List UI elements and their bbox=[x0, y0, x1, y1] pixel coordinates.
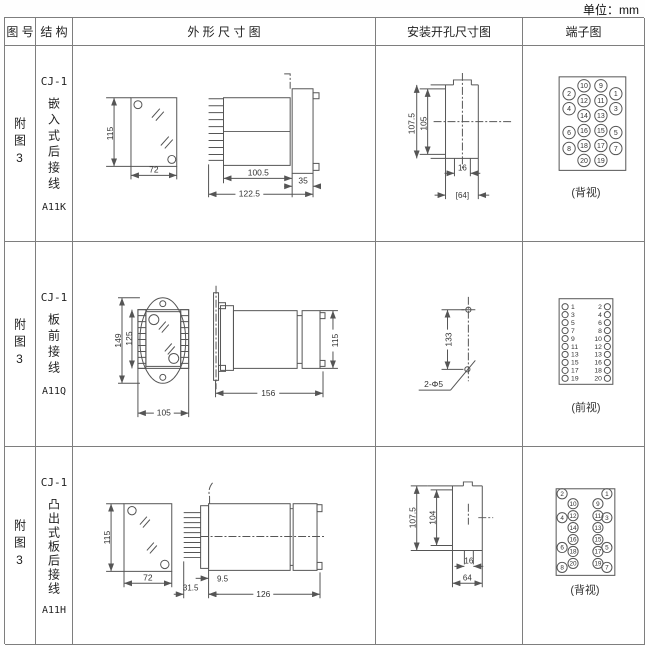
svg-text:19: 19 bbox=[597, 158, 605, 165]
svg-text:2: 2 bbox=[567, 91, 571, 98]
hole-layout: 133 2-Φ5 bbox=[419, 297, 476, 390]
svg-text:14: 14 bbox=[570, 525, 578, 532]
svg-text:13: 13 bbox=[594, 352, 602, 359]
terminal-circles: 1 3 5 7 9 11 13 15 17 19 2 4 6 8 10 12 1 bbox=[562, 304, 610, 383]
header-terminal: 端子图 bbox=[523, 18, 645, 46]
svg-text:16: 16 bbox=[570, 537, 578, 544]
install-cell-r2: 133 2-Φ5 bbox=[376, 242, 523, 447]
svg-text:20: 20 bbox=[594, 376, 602, 383]
terminal-caption: (前视) bbox=[571, 400, 600, 414]
dim-install-h2: 105 bbox=[419, 116, 429, 130]
dim-install-w2: 64 bbox=[463, 573, 472, 582]
svg-text:2: 2 bbox=[560, 491, 564, 498]
install-cell-r1: 107.5 105 16 [64] bbox=[376, 46, 523, 242]
dim-pin-depth: 31.5 bbox=[183, 583, 199, 592]
front-view: 115 72 bbox=[105, 98, 177, 180]
svg-text:5: 5 bbox=[571, 320, 575, 327]
outline-drawing-r2: 149 125 105 bbox=[73, 242, 375, 446]
install-dimensions: 107.5 105 16 [64] bbox=[407, 85, 489, 200]
terminal-cell-r3: 10 12 14 16 18 20 9 11 13 15 17 19 2 4 6… bbox=[523, 447, 645, 645]
svg-text:7: 7 bbox=[614, 146, 618, 153]
svg-text:17: 17 bbox=[594, 549, 602, 556]
header-fig-no: 图 号 bbox=[5, 18, 36, 46]
dim-side-height: 115 bbox=[330, 333, 340, 347]
svg-text:5: 5 bbox=[614, 130, 618, 137]
side-view: 9.5 31.5 126 bbox=[174, 483, 325, 599]
svg-text:17: 17 bbox=[597, 143, 605, 150]
svg-text:12: 12 bbox=[580, 98, 588, 105]
header-install: 安装开孔尺寸图 bbox=[376, 18, 523, 46]
fig-no-label: 附图3 bbox=[12, 117, 29, 170]
dim-install-h1: 107.5 bbox=[408, 507, 418, 528]
svg-text:15: 15 bbox=[597, 128, 605, 135]
svg-text:1: 1 bbox=[605, 491, 609, 498]
svg-text:9: 9 bbox=[596, 501, 600, 508]
dim-install-h1: 107.5 bbox=[407, 113, 417, 134]
dim-depth: 156 bbox=[261, 388, 275, 398]
svg-text:12: 12 bbox=[570, 513, 578, 520]
svg-text:19: 19 bbox=[571, 376, 579, 383]
model-label: A11H bbox=[42, 605, 66, 616]
dim-front-height: 115 bbox=[105, 127, 115, 141]
mount-label: 凸出式板后接线 bbox=[46, 498, 63, 596]
svg-text:20: 20 bbox=[570, 561, 578, 568]
svg-text:18: 18 bbox=[580, 143, 588, 150]
svg-text:10: 10 bbox=[580, 83, 588, 90]
svg-text:20: 20 bbox=[580, 158, 588, 165]
catalog-page: 单位：mm 图 号 结 构 外 形 尺 寸 图 安装开孔尺寸图 端子图 附图3 … bbox=[0, 0, 645, 646]
svg-text:8: 8 bbox=[598, 328, 602, 335]
dim-panel: 35 bbox=[298, 175, 308, 185]
structure-r3: CJ-1 凸出式板后接线 A11H bbox=[36, 447, 73, 645]
terminal-cell-r2: 1 3 5 7 9 11 13 15 17 19 2 4 6 8 10 12 1 bbox=[523, 242, 645, 447]
mount-label: 嵌入式后接线 bbox=[46, 97, 63, 193]
front-view: 149 125 105 bbox=[113, 298, 189, 418]
header-outline: 外 形 尺 寸 图 bbox=[73, 18, 376, 46]
install-cell-r3: 107.5 104 16 64 bbox=[376, 447, 523, 645]
svg-text:4: 4 bbox=[560, 515, 564, 522]
structure-r1: CJ-1 嵌入式后接线 A11K bbox=[36, 46, 73, 242]
series-label: CJ-1 bbox=[41, 75, 68, 88]
svg-text:10: 10 bbox=[594, 336, 602, 343]
dim-install-w1: 16 bbox=[464, 556, 473, 565]
svg-text:6: 6 bbox=[567, 130, 571, 137]
mount-label: 板前接线 bbox=[46, 313, 63, 377]
svg-text:13: 13 bbox=[597, 113, 605, 120]
dim-depth: 126 bbox=[256, 589, 270, 599]
install-dimensions: 107.5 104 16 64 bbox=[408, 486, 484, 583]
svg-text:18: 18 bbox=[570, 549, 578, 556]
svg-text:7: 7 bbox=[605, 565, 609, 572]
svg-text:18: 18 bbox=[594, 368, 602, 375]
dim-hole-height: 133 bbox=[443, 332, 453, 346]
svg-text:2: 2 bbox=[598, 304, 602, 311]
install-drawing-r1: 107.5 105 16 [64] bbox=[376, 46, 522, 241]
svg-text:19: 19 bbox=[594, 561, 602, 568]
svg-text:11: 11 bbox=[597, 98, 604, 105]
terminal-circles: 10 12 14 16 18 20 9 11 13 15 17 19 2 4 6… bbox=[563, 80, 622, 167]
svg-text:9: 9 bbox=[599, 83, 603, 90]
outline-cell-r1: 115 72 100.5 35 bbox=[73, 46, 376, 242]
hole-spec-label: 2-Φ5 bbox=[424, 379, 443, 389]
dim-install-w1: 16 bbox=[458, 163, 467, 172]
terminal-caption: (背视) bbox=[570, 582, 599, 596]
dim-total-depth: 122.5 bbox=[239, 189, 260, 199]
series-label: CJ-1 bbox=[41, 291, 68, 304]
svg-text:4: 4 bbox=[598, 312, 602, 319]
svg-text:8: 8 bbox=[560, 565, 564, 572]
fig-no-label: 附图3 bbox=[12, 318, 29, 371]
install-drawing-r2: 133 2-Φ5 bbox=[376, 242, 522, 446]
terminal-caption: (背视) bbox=[571, 185, 600, 199]
fig-no-label: 附图3 bbox=[12, 519, 29, 572]
side-view: 100.5 35 122.5 bbox=[209, 74, 321, 199]
side-view: 156 115 bbox=[214, 286, 340, 398]
header-structure: 结 构 bbox=[36, 18, 73, 46]
terminal-diagram-r2: 1 3 5 7 9 11 13 15 17 19 2 4 6 8 10 12 1 bbox=[523, 242, 644, 446]
terminal-diagram-r3: 10 12 14 16 18 20 9 11 13 15 17 19 2 4 6… bbox=[523, 447, 644, 644]
dim-front-height: 115 bbox=[102, 531, 112, 545]
svg-text:4: 4 bbox=[567, 106, 571, 113]
svg-text:15: 15 bbox=[594, 537, 602, 544]
outline-cell-r3: 115 72 9.5 31.5 bbox=[73, 447, 376, 645]
dim-install-h2: 104 bbox=[428, 510, 438, 524]
dim-inner-height: 125 bbox=[124, 331, 134, 345]
svg-text:9: 9 bbox=[571, 336, 575, 343]
front-view: 115 72 bbox=[102, 504, 172, 588]
svg-text:15: 15 bbox=[571, 360, 579, 367]
cutout-outline bbox=[411, 482, 493, 587]
unit-label: 单位：mm bbox=[583, 1, 639, 18]
terminal-cell-r1: 10 12 14 16 18 20 9 11 13 15 17 19 2 4 6… bbox=[523, 46, 645, 242]
svg-text:7: 7 bbox=[571, 328, 575, 335]
model-label: A11Q bbox=[42, 386, 66, 397]
dim-offset: 9.5 bbox=[217, 574, 229, 583]
dim-width: 105 bbox=[157, 408, 171, 418]
structure-r2: CJ-1 板前接线 A11Q bbox=[36, 242, 73, 447]
svg-text:13: 13 bbox=[594, 525, 602, 532]
dim-height: 149 bbox=[113, 333, 123, 347]
svg-text:17: 17 bbox=[571, 368, 579, 375]
svg-text:1: 1 bbox=[571, 304, 575, 311]
dim-install-w2: [64] bbox=[456, 191, 469, 200]
dimension-table: 图 号 结 构 外 形 尺 寸 图 安装开孔尺寸图 端子图 附图3 CJ-1 嵌… bbox=[4, 17, 644, 644]
fig-no-r1: 附图3 bbox=[5, 46, 36, 242]
svg-text:1: 1 bbox=[614, 91, 618, 98]
svg-text:12: 12 bbox=[594, 344, 602, 351]
svg-text:8: 8 bbox=[567, 146, 571, 153]
dim-depth: 100.5 bbox=[248, 167, 269, 177]
svg-text:13: 13 bbox=[571, 352, 579, 359]
series-label: CJ-1 bbox=[41, 476, 68, 489]
svg-text:11: 11 bbox=[595, 513, 602, 520]
outline-cell-r2: 149 125 105 bbox=[73, 242, 376, 447]
svg-text:3: 3 bbox=[571, 312, 575, 319]
install-drawing-r3: 107.5 104 16 64 bbox=[376, 447, 522, 644]
fig-no-r3: 附图3 bbox=[5, 447, 36, 645]
svg-text:6: 6 bbox=[560, 545, 564, 552]
cutout-outline bbox=[431, 73, 511, 199]
svg-text:11: 11 bbox=[571, 344, 578, 351]
svg-text:6: 6 bbox=[598, 320, 602, 327]
svg-text:3: 3 bbox=[614, 106, 618, 113]
outline-drawing-r3: 115 72 9.5 31.5 bbox=[73, 447, 375, 644]
svg-text:16: 16 bbox=[580, 128, 588, 135]
outline-drawing-r1: 115 72 100.5 35 bbox=[73, 46, 375, 241]
terminal-circles: 10 12 14 16 18 20 9 11 13 15 17 19 2 4 6… bbox=[557, 489, 612, 573]
dim-front-width: 72 bbox=[143, 572, 153, 582]
svg-text:10: 10 bbox=[570, 501, 578, 508]
svg-text:5: 5 bbox=[605, 545, 609, 552]
dim-front-width: 72 bbox=[149, 164, 159, 174]
svg-text:14: 14 bbox=[580, 113, 588, 120]
svg-text:3: 3 bbox=[605, 515, 609, 522]
svg-text:16: 16 bbox=[594, 360, 602, 367]
fig-no-r2: 附图3 bbox=[5, 242, 36, 447]
model-label: A11K bbox=[42, 202, 66, 213]
terminal-diagram-r1: 10 12 14 16 18 20 9 11 13 15 17 19 2 4 6… bbox=[523, 46, 644, 241]
